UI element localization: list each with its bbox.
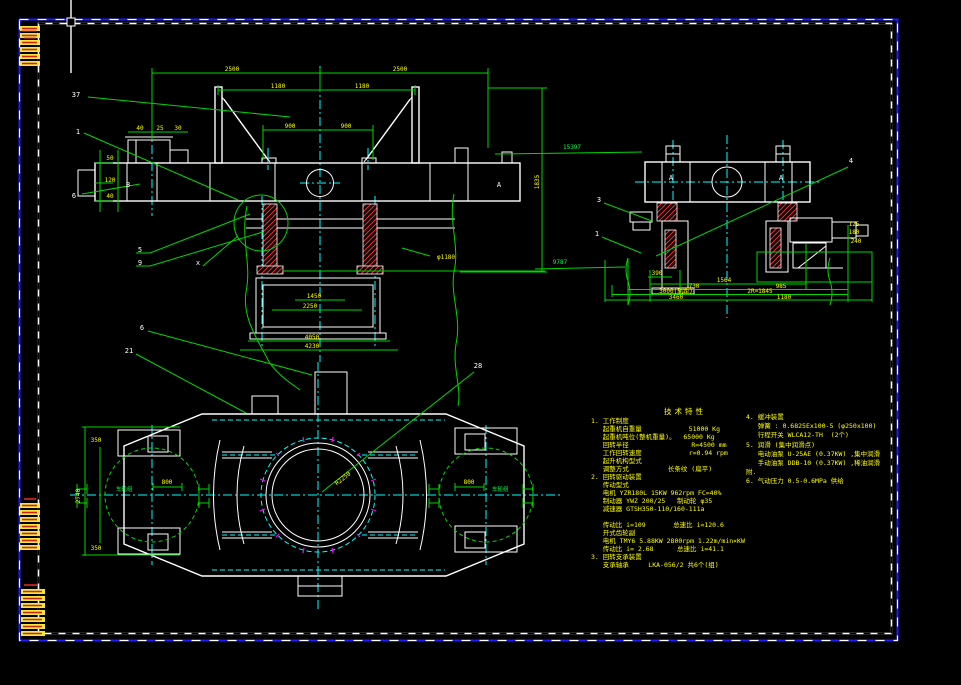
crosshair-cursor[interactable] [67, 0, 75, 73]
balloon-3: 3 [597, 196, 601, 204]
elevation-mark: 9787 [553, 259, 568, 266]
dim-text: 350 [91, 545, 102, 552]
spec-line: 1. 工作制度 [591, 417, 745, 425]
spec-line: 回转半径 R=4500 mm [591, 441, 745, 449]
balloon-5: 5 [138, 246, 142, 254]
stamp-block-top-left [20, 26, 40, 66]
balloon-4: 4 [849, 157, 853, 165]
spec-line: 起重机自重量 51000 Kg [591, 425, 745, 433]
dim-text: 1180 [777, 294, 792, 301]
dim-text: 1450 [307, 293, 322, 300]
dim-text: 1180 [355, 83, 370, 90]
dim-text: 240 [851, 238, 862, 245]
spec-line: 传动比 i=109 总速比 i=120.6 [591, 521, 745, 529]
dim-text: 3460 [669, 294, 684, 301]
spec-line: 工作回转速度 r=0.94 rpm [591, 449, 745, 457]
dim-text: 800 [162, 479, 173, 486]
dim-text: 30 [174, 125, 182, 132]
spec-line: 行程开关 WLCA12-TH (2个) [746, 431, 880, 440]
dim-text: 25 [156, 125, 164, 132]
front-leaders [82, 97, 312, 413]
dim-text: 985 [776, 283, 787, 290]
dim-text: 1835 [534, 174, 541, 189]
balloon-28: 28 [474, 362, 482, 370]
elevation-mark: 15397 [563, 144, 581, 151]
side-view: A A 3 1 4 390 1564 730 985 3000(轨距) 2R=1… [595, 135, 872, 318]
spec-line: 起升机构型式 [591, 457, 745, 465]
spec-line: 2. 回转驱动装置 [591, 473, 745, 481]
spec-line: 电机 YZR180L 15KW 962rpm FC=40% [591, 489, 745, 497]
dim-text: 4050 [305, 334, 320, 341]
front-brackets [125, 137, 512, 163]
balloon-21: 21 [125, 347, 133, 355]
dim-text: 900 [285, 123, 296, 130]
balloon-37: 37 [72, 91, 80, 99]
dim-text: 2250 [303, 303, 318, 310]
dim-text: 800 [464, 479, 475, 486]
balloon-1: 1 [76, 128, 80, 136]
dim-text: 2500 [393, 66, 408, 73]
dim-text: 2500 [225, 66, 240, 73]
spec-line: 6. 气动压力 0.5-0.6MPa 供给 [746, 477, 880, 486]
spec-line: 制动器 YWZ 200/25 制动轮 φ35 [591, 497, 745, 505]
plan-view: 800 800 350 350 2740 R2250 车轮组 车轮组 6 21 … [70, 324, 560, 612]
plan-rail-symbols [77, 484, 533, 508]
detail-circle-x [234, 195, 288, 251]
detail-label-x: x [196, 259, 200, 267]
dim-text: 50 [106, 155, 114, 162]
spec-line: 电动油泵 U-25AE (0.37KW) ,集中润滑 [746, 450, 880, 459]
wheel-group-label: 车轮组 [492, 485, 509, 493]
tech-spec-title: 技术特性 [664, 406, 706, 417]
break-line-right [452, 194, 459, 406]
dim-text: 120 [105, 177, 116, 184]
spec-line: 3. 回转支承装置 [591, 553, 745, 561]
spec-line: 减速器 GTSH350-110/160-111a [591, 505, 745, 513]
balloon-6: 6 [72, 192, 76, 200]
dim-text: 390 [652, 270, 663, 277]
cad-drawing-canvas[interactable]: 2500 2500 1180 1180 900 900 50 120 40 40… [0, 0, 961, 685]
spec-line: 支承轴承 LKA-056/2 共6个(组) [591, 561, 745, 569]
dim-text: 2740 [75, 488, 82, 503]
sheet-border-outer [20, 20, 898, 641]
balloon-9: 9 [138, 259, 142, 267]
spec-line: 4. 缓冲装置 [746, 413, 880, 422]
dim-text: 4230 [305, 343, 320, 350]
front-pintle [234, 195, 455, 414]
dim-text: φ1180 [437, 254, 455, 261]
spec-line: 传动型式 [591, 481, 745, 489]
spec-line: 起重机吨位(整机重量)。 65000 Kg [591, 433, 745, 441]
dim-text: 1564 [717, 277, 732, 284]
tech-spec-left-column: 1. 工作制度 起重机自重量 51000 Kg 起重机吨位(整机重量)。 650… [591, 417, 745, 569]
stamp-block-bottom-left [21, 585, 45, 636]
stamp-block-mid-left [20, 499, 40, 550]
side-legs [630, 203, 797, 294]
spec-line: 5. 润滑 (集中润滑点) [746, 441, 880, 450]
spec-line: 调整方式 长条纹 (扁平) [591, 465, 745, 473]
tech-spec-right-column: 4. 缓冲装置 弹簧 : 0.6825Ex100-5 (φ250x100) 行程… [746, 413, 880, 487]
dim-text: 180 [849, 229, 860, 236]
spec-line [591, 513, 745, 521]
dim-text: 40 [106, 193, 114, 200]
dim-text: 2R=1845 [747, 288, 773, 295]
dim-text: 900 [341, 123, 352, 130]
section-label-b: B [126, 181, 130, 189]
dim-text: R2250 [334, 470, 353, 487]
front-view: 2500 2500 1180 1180 900 900 50 120 40 40… [72, 66, 642, 414]
spec-line: 电机 TMY6 5.88KW 2800rpm 1.22m/min×KW [591, 537, 745, 545]
dim-text: 40 [136, 125, 144, 132]
plan-outline [124, 414, 524, 596]
drawing-sheet: 2500 2500 1180 1180 900 900 50 120 40 40… [0, 0, 961, 685]
spec-line: 传动比 i= 2.68 总速比 i=41.1 [591, 545, 745, 553]
spec-line: 手动油泵 DDB-10 (0.37KW) ,稀油润滑 [746, 459, 880, 468]
wheel-group-label: 车轮组 [116, 485, 133, 493]
front-posts [215, 87, 419, 163]
balloon-6: 6 [140, 324, 144, 332]
spec-line: 开式齿轮副 [591, 529, 745, 537]
balloon-1: 1 [595, 230, 599, 238]
dim-text: 1180 [271, 83, 286, 90]
section-label-a: A [497, 181, 502, 189]
dim-text: 350 [91, 437, 102, 444]
dim-text: 125 [849, 221, 860, 228]
